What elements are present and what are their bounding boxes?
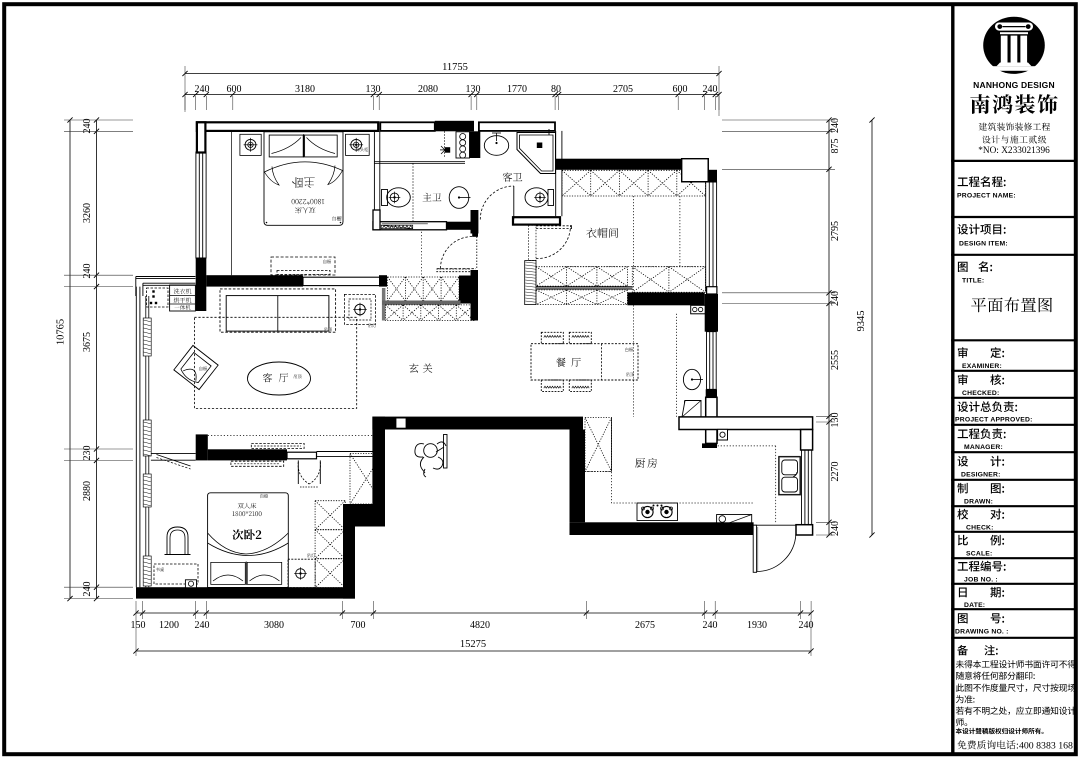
svg-text:EXAMINER:: EXAMINER: (962, 363, 1002, 370)
svg-text:1930: 1930 (747, 620, 767, 631)
svg-text:130: 130 (830, 413, 841, 428)
svg-text:DRAWN:: DRAWN: (964, 499, 993, 506)
svg-text:240: 240 (195, 84, 210, 95)
svg-text:230: 230 (82, 446, 93, 461)
svg-text:CHECK:: CHECK: (966, 525, 994, 532)
svg-text:自橱: 自橱 (260, 493, 269, 500)
svg-text:自橱: 自橱 (199, 365, 208, 372)
svg-text:DATE:: DATE: (964, 602, 985, 609)
svg-text:DESIGN ITEM:: DESIGN ITEM: (959, 241, 1008, 248)
svg-text:*NO: X233021396: *NO: X233021396 (978, 146, 1050, 156)
svg-text:240: 240 (195, 620, 210, 631)
svg-text:15275: 15275 (460, 639, 486, 650)
svg-text:白橱: 白橱 (625, 346, 634, 353)
svg-text:240: 240 (830, 521, 841, 536)
svg-text:DESIGNER:: DESIGNER: (961, 472, 1001, 479)
svg-text:2270: 2270 (830, 462, 841, 482)
svg-text:2555: 2555 (830, 350, 841, 370)
svg-text:PROJECT APPROVED:: PROJECT APPROVED: (955, 417, 1033, 424)
svg-text:NANHONG DESIGN: NANHONG DESIGN (973, 80, 1055, 90)
svg-text:150: 150 (131, 620, 146, 631)
svg-text:11755: 11755 (442, 62, 468, 73)
svg-text:240: 240 (703, 84, 718, 95)
svg-text:240: 240 (830, 118, 841, 133)
svg-text:240: 240 (830, 291, 841, 306)
svg-text:TITLE:: TITLE: (962, 278, 984, 285)
svg-text:240: 240 (82, 264, 93, 279)
svg-text:130: 130 (366, 84, 381, 95)
svg-text:3675: 3675 (82, 332, 93, 352)
svg-text:2705: 2705 (613, 84, 633, 95)
svg-text:3260: 3260 (82, 203, 93, 223)
svg-text:MANAGER:: MANAGER: (964, 444, 1003, 451)
svg-text:600: 600 (673, 84, 688, 95)
svg-text:2675: 2675 (635, 620, 655, 631)
svg-text:240: 240 (82, 119, 93, 134)
svg-text:2080: 2080 (418, 84, 438, 95)
svg-text:240: 240 (82, 582, 93, 597)
svg-text:2880: 2880 (82, 481, 93, 501)
svg-text:130: 130 (466, 84, 481, 95)
svg-text:PROJECT NAME:: PROJECT NAME: (957, 193, 1016, 200)
svg-text:700: 700 (351, 620, 366, 631)
svg-text:1200: 1200 (159, 620, 179, 631)
svg-text:600: 600 (227, 84, 242, 95)
svg-text:JOB NO. :: JOB NO. : (964, 577, 998, 584)
svg-text:SCALE:: SCALE: (966, 551, 993, 558)
svg-text:床头柜: 床头柜 (356, 146, 369, 153)
svg-text:3180: 3180 (295, 84, 315, 95)
svg-text:3080: 3080 (264, 620, 284, 631)
svg-text:9345: 9345 (856, 311, 867, 332)
svg-text:875: 875 (830, 139, 841, 154)
svg-text:吊灯: 吊灯 (307, 552, 316, 559)
svg-text:1770: 1770 (507, 84, 527, 95)
svg-text:CHECKED:: CHECKED: (962, 390, 999, 397)
svg-text:2795: 2795 (830, 221, 841, 241)
svg-text:80: 80 (551, 84, 561, 95)
svg-text:240: 240 (703, 620, 718, 631)
svg-text:10765: 10765 (56, 319, 67, 345)
svg-text:自橱: 自橱 (323, 258, 332, 265)
svg-text:吊灯: 吊灯 (368, 322, 377, 329)
svg-text:DRAWING NO. :: DRAWING NO. : (955, 629, 1009, 636)
svg-text:4820: 4820 (470, 620, 490, 631)
svg-text:书桌: 书桌 (156, 566, 165, 573)
svg-text:400 8383 168: 400 8383 168 (1019, 741, 1073, 752)
